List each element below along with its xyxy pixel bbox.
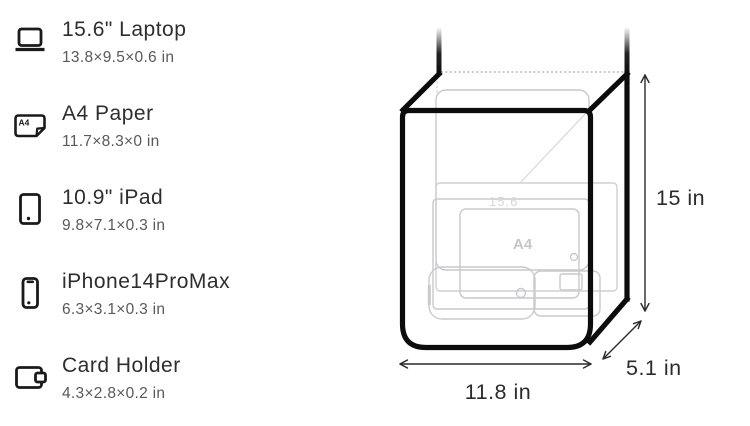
interior-ipad-camera: [571, 254, 578, 261]
dimension-arrows: [400, 75, 649, 368]
bag-dimension-diagram: 15.6 A4 15 in 11.8 in 5.1 in: [0, 0, 750, 426]
interior-laptop-fold-line: [520, 112, 587, 183]
bag-strap-left: [437, 27, 442, 75]
bag-bottom-right-edge: [590, 299, 627, 342]
height-dimension-label: 15 in: [656, 186, 705, 210]
depth-dimension-label: 5.1 in: [626, 356, 682, 380]
bag-top-right-edge: [590, 74, 627, 110]
width-dimension-label: 11.8 in: [465, 380, 531, 404]
bag-top-left-edge: [403, 74, 439, 110]
interior-a4-label: A4: [513, 236, 533, 253]
depth-arrow: [603, 321, 641, 359]
interior-iphone-camera: [517, 289, 526, 298]
interior-iphone-outline: [429, 267, 535, 319]
bag-strap-right: [625, 27, 630, 75]
height-arrow: [641, 75, 649, 311]
width-arrow: [400, 360, 591, 368]
interior-iphone-side-button: [428, 285, 431, 305]
interior-ipad-outline: [460, 209, 579, 298]
interior-a4-paper-outline: [433, 199, 589, 309]
interior-laptop-label: 15.6: [489, 194, 518, 209]
